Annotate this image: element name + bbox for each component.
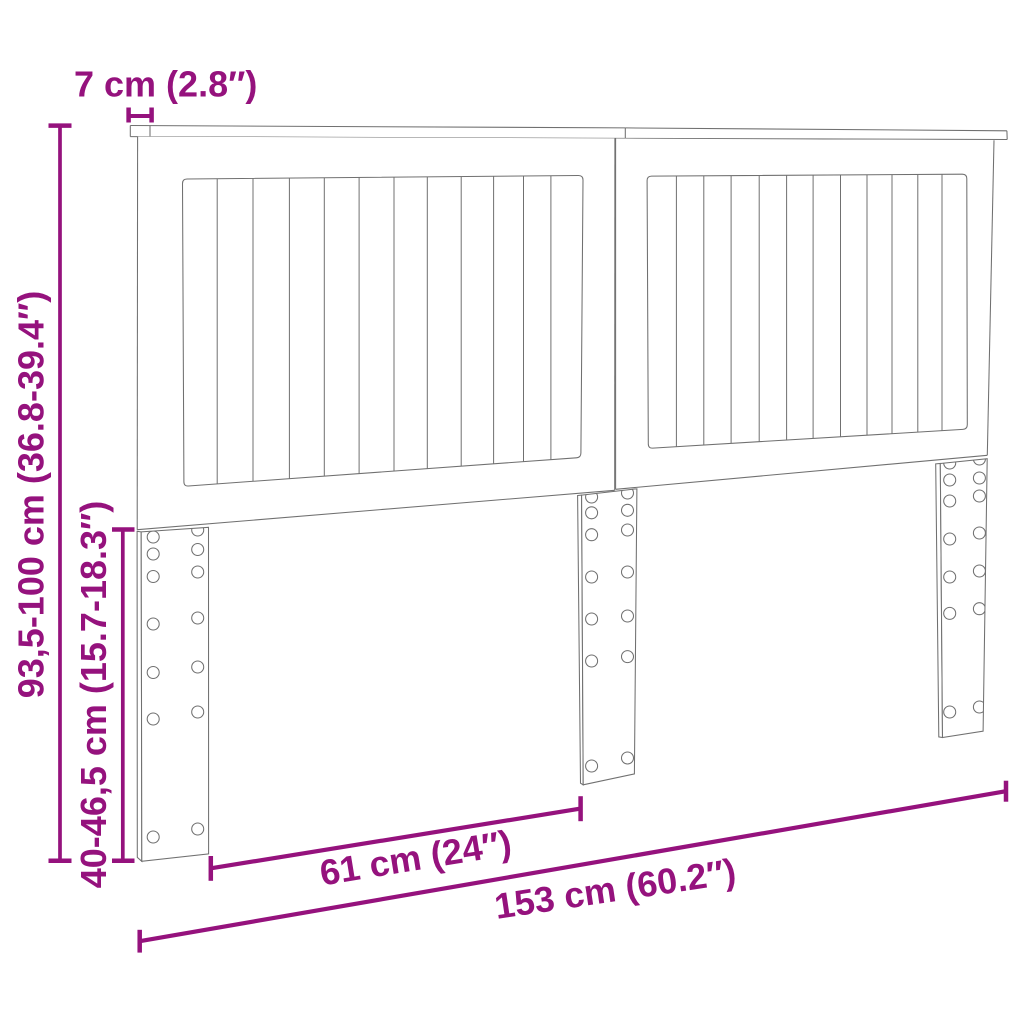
svg-text:40-46,5 cm (15.7-18.3″): 40-46,5 cm (15.7-18.3″) bbox=[73, 501, 114, 888]
svg-text:7 cm (2.8″): 7 cm (2.8″) bbox=[74, 64, 257, 105]
svg-text:93,5-100 cm (36.8-39.4″): 93,5-100 cm (36.8-39.4″) bbox=[10, 291, 51, 699]
